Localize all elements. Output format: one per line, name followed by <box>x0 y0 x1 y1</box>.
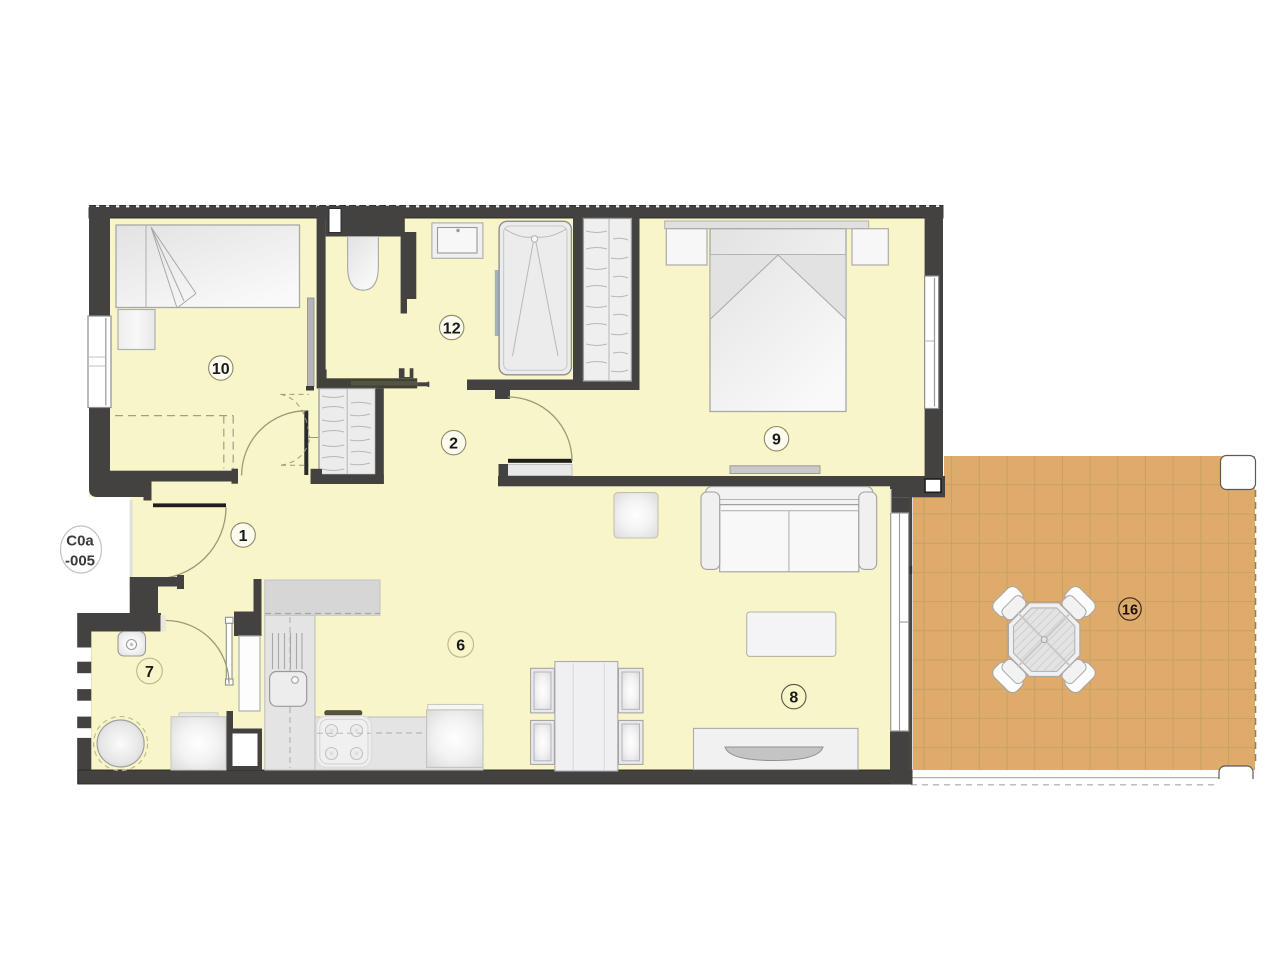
svg-text:9: 9 <box>772 432 781 449</box>
svg-text:7: 7 <box>145 664 154 681</box>
svg-text:16: 16 <box>1122 603 1138 619</box>
svg-text:12: 12 <box>443 321 461 338</box>
svg-text:10: 10 <box>212 361 230 378</box>
svg-text:2: 2 <box>449 436 458 453</box>
svg-text:8: 8 <box>789 690 798 707</box>
svg-text:6: 6 <box>456 637 465 654</box>
svg-text:1: 1 <box>239 528 248 545</box>
svg-text:C0a: C0a <box>66 533 94 550</box>
svg-text:-005: -005 <box>65 553 95 570</box>
